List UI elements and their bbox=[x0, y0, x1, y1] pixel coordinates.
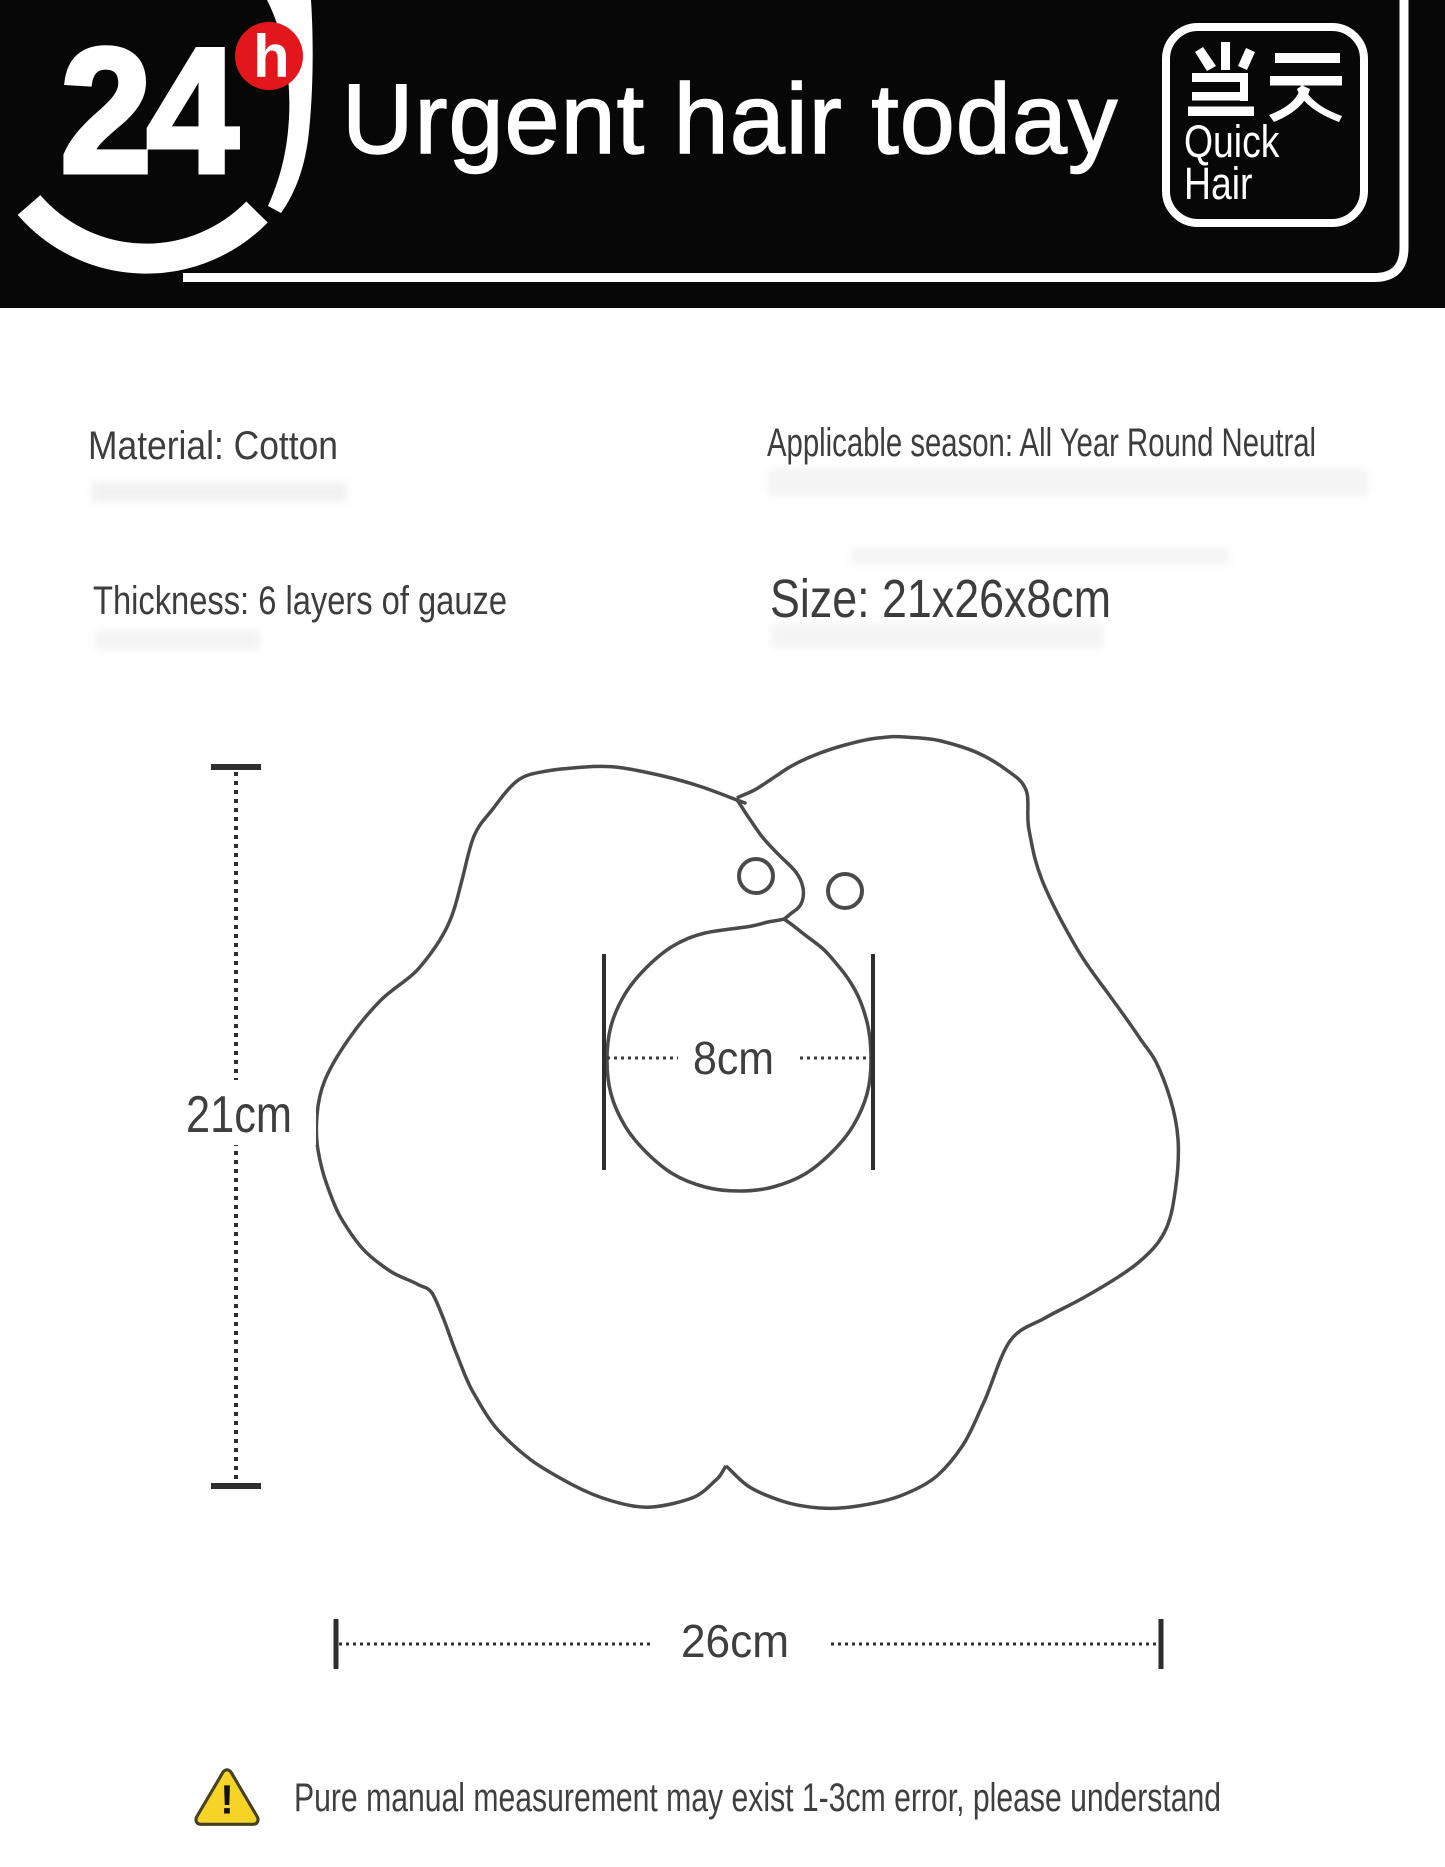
svg-text:!: ! bbox=[220, 1777, 234, 1823]
svg-text:Urgent hair today: Urgent hair today bbox=[342, 63, 1118, 174]
svg-text:Hair: Hair bbox=[1184, 159, 1253, 209]
svg-text:h: h bbox=[253, 23, 290, 90]
svg-text:24: 24 bbox=[60, 11, 238, 210]
